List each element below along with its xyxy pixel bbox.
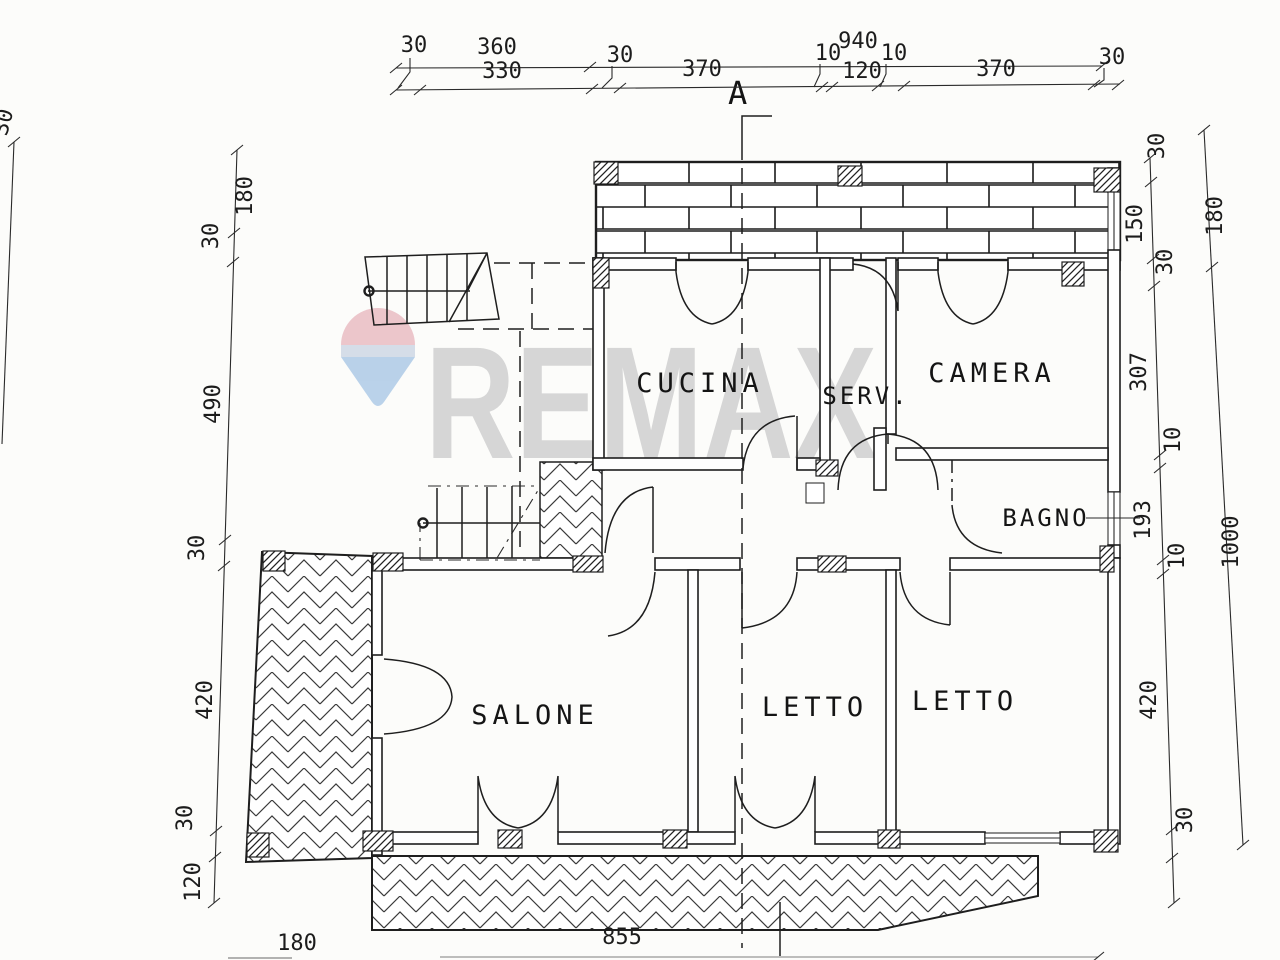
terrace-bottom-herringbone	[372, 856, 1038, 930]
dim-label: 30	[1153, 249, 1178, 276]
dim-label: 150	[1123, 204, 1148, 244]
floor-plan-page: REMAX	[0, 0, 1280, 960]
dim-label: 490	[201, 384, 226, 424]
dim-label: 180	[277, 931, 317, 956]
dim-label: 30	[199, 223, 224, 250]
room-label-camera: CAMERA	[928, 358, 1056, 389]
terrace-left-herringbone	[246, 552, 372, 862]
dim-label: 940	[838, 29, 878, 54]
dim-label: 120	[181, 862, 206, 902]
room-label-bagno: BAGNO	[1002, 504, 1089, 532]
room-label-cucina: CUCINA	[636, 368, 764, 399]
dim-label: 370	[976, 57, 1016, 82]
dim-label: 180	[233, 176, 258, 216]
dim-label: 307	[1127, 352, 1152, 392]
dim-label: 370	[682, 57, 722, 82]
stair-landing-herringbone	[540, 462, 602, 558]
dim-label: 10	[1161, 427, 1186, 454]
dim-label: 420	[193, 680, 218, 720]
dim-label: 193	[1131, 500, 1156, 540]
dim-label: 120	[842, 59, 882, 84]
dim-label: 180	[1203, 196, 1228, 236]
dimension-right-inner: 30 150 30 307 10 193 10 420 30	[1123, 133, 1198, 908]
dimension-left-outer: 30	[0, 106, 20, 444]
room-label-letto-2: LETTO	[912, 686, 1018, 717]
dim-label: 1000	[1219, 516, 1244, 569]
dim-label: 10	[881, 41, 908, 66]
dim-label: 30	[1173, 807, 1198, 834]
dim-label: 30	[401, 33, 428, 58]
dim-label: 30	[607, 43, 634, 68]
dim-label: 10	[1165, 543, 1190, 570]
dim-label: 30	[1145, 133, 1170, 160]
room-label-letto-1: LETTO	[762, 692, 868, 723]
dimension-right-outer: 180 1000	[1198, 125, 1249, 850]
floor-plan-canvas: REMAX	[0, 0, 1280, 960]
dim-label: 360	[477, 35, 517, 60]
remax-balloon-icon	[341, 308, 415, 406]
dim-label: 330	[482, 59, 522, 84]
dim-label: 420	[1137, 680, 1162, 720]
room-label-servizi: SERV.	[822, 382, 909, 410]
dim-label: 30	[173, 805, 198, 832]
dim-label: 855	[602, 925, 642, 950]
dim-label: 30	[1099, 45, 1126, 70]
dim-label: 30	[0, 106, 19, 138]
dim-label: 30	[185, 535, 210, 562]
dimension-left-inner: 180 30 490 30 420 30 120	[173, 145, 258, 908]
section-marker-label: A	[728, 74, 747, 112]
dimension-top: 360 940 30 330 30 370 10 120 10 370 30	[390, 29, 1125, 95]
dim-label: 10	[815, 41, 842, 66]
stair-mid-left	[419, 486, 541, 560]
room-label-salone: SALONE	[471, 700, 599, 731]
